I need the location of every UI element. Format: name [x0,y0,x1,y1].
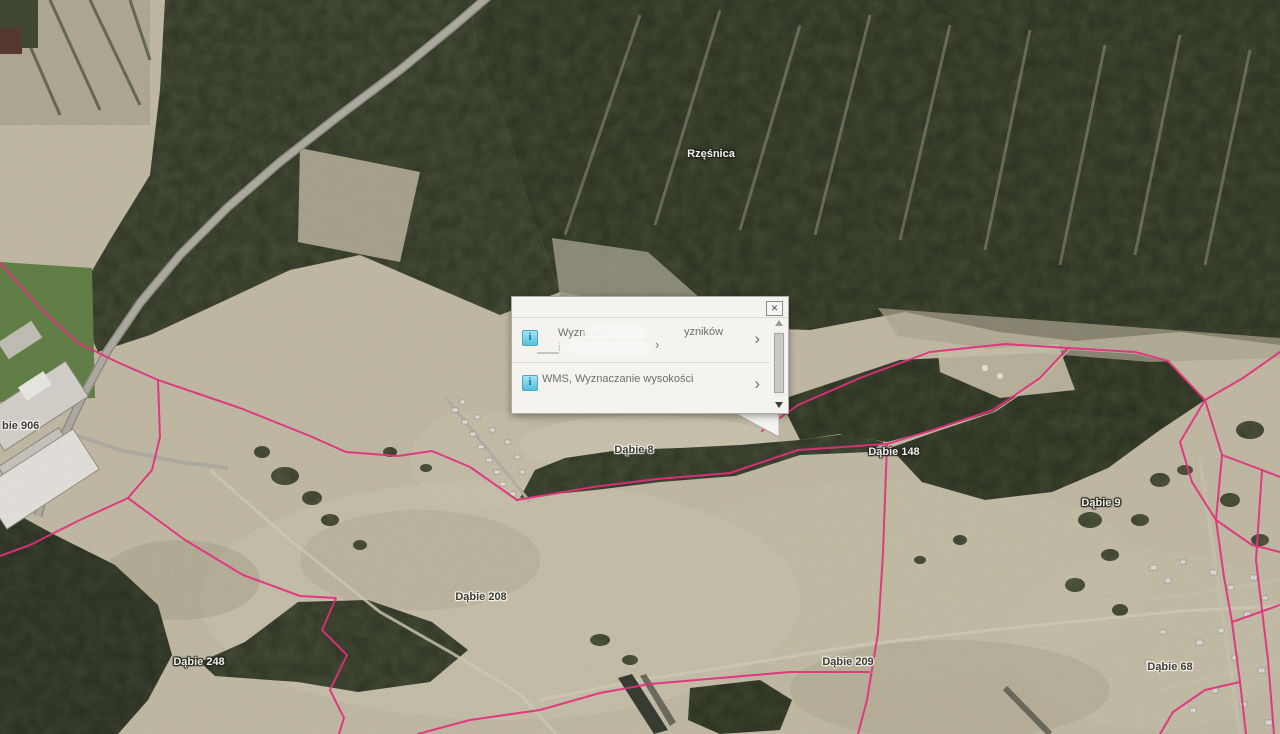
chevron-right-icon[interactable]: › [754,332,760,346]
result-item-1[interactable]: i Wyznacza ryb yzników i › › [512,318,770,362]
blur-smudge [584,326,646,339]
map-viewport[interactable]: RzęśnicaDąbie 8Dąbie 148Dąbie 9Dąbie 208… [0,0,1280,734]
result-item-1-title-fragment2: yzników [684,326,723,338]
scroll-down-icon[interactable] [775,402,783,408]
result-item-2[interactable]: i WMS, Wyznaczanie wysokości › [512,363,770,407]
blur-smudge [568,341,650,354]
popup-scrollbar[interactable] [773,319,785,408]
info-icon: i [522,375,538,391]
chevron-right-icon: › [655,337,659,352]
identify-results-popup: ✕ i Wyznacza ryb yzników i › › i WMS, Wy… [511,296,789,414]
info-icon: i [522,330,538,346]
divider [537,352,559,354]
close-icon[interactable]: ✕ [766,301,783,316]
scroll-up-icon[interactable] [775,320,783,326]
result-item-1-subtitle-hint: i [558,342,560,354]
result-item-2-title: WMS, Wyznaczanie wysokości [542,373,694,385]
scrollbar-thumb[interactable] [774,333,784,393]
chevron-right-icon[interactable]: › [754,377,760,391]
